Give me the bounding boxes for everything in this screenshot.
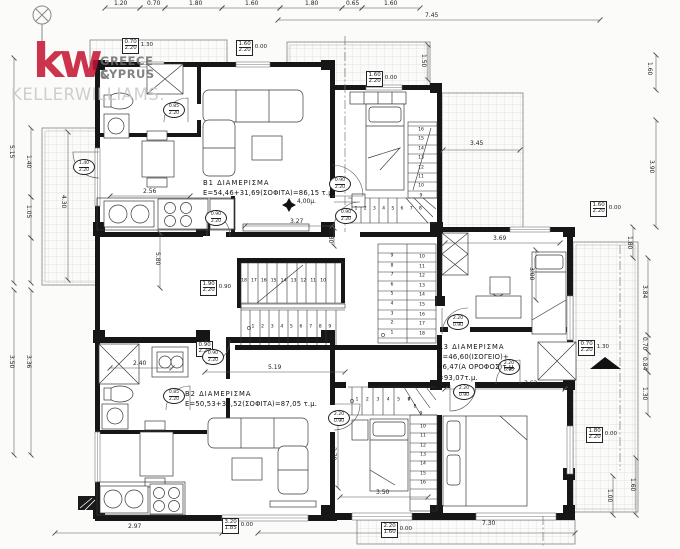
ground-hatch: [78, 496, 95, 510]
kw-logo: kw: [33, 38, 98, 85]
floor-plan-canvas: 1.200.701.801.601.800.651.607.455.151.40…: [0, 0, 680, 549]
apartment-label-b1: B1 ΔΙΑΜΕΡΙΣΜΑ E=54,46+31,69(ΣΟΦΙΤΑ)=86,1…: [203, 178, 335, 198]
logo-brand-name: KELLERWILLIAMS.: [11, 85, 165, 104]
apartment-title: B1 ΔΙΑΜΕΡΙΣΜΑ: [203, 178, 335, 188]
apartment-area: E=46,60(ΙΣΟΓΕΙΟ)+: [438, 352, 516, 362]
logo-region-line2: CYPRUS: [100, 67, 155, 81]
apartment-area: E=54,46+31,69(ΣΟΦΙΤΑ)=86,15 τ.μ.: [203, 188, 335, 198]
apartment-title: B2 ΔΙΑΜΕΡΙΣΜΑ: [185, 389, 317, 399]
apartment-label-b2: B2 ΔΙΑΜΕΡΙΣΜΑ E=50,53+36,52(ΣΟΦΙΤΑ)=87,0…: [185, 389, 317, 409]
apartment-area: 46,47(Α ΟΡΟΦΟΣ)τ.μ.: [438, 362, 516, 372]
apartment-label-a3: A3 ΔΙΑΜΕΡΙΣΜΑ E=46,60(ΙΣΟΓΕΙΟ)+ 46,47(Α …: [438, 342, 516, 383]
apartment-area: =93,07τ.μ.: [438, 373, 516, 383]
apartment-area: E=50,53+36,52(ΣΟΦΙΤΑ)=87,05 τ.μ.: [185, 399, 317, 409]
floor-plan-drawing: [0, 0, 680, 549]
apartment-title: A3 ΔΙΑΜΕΡΙΣΜΑ: [438, 342, 516, 352]
